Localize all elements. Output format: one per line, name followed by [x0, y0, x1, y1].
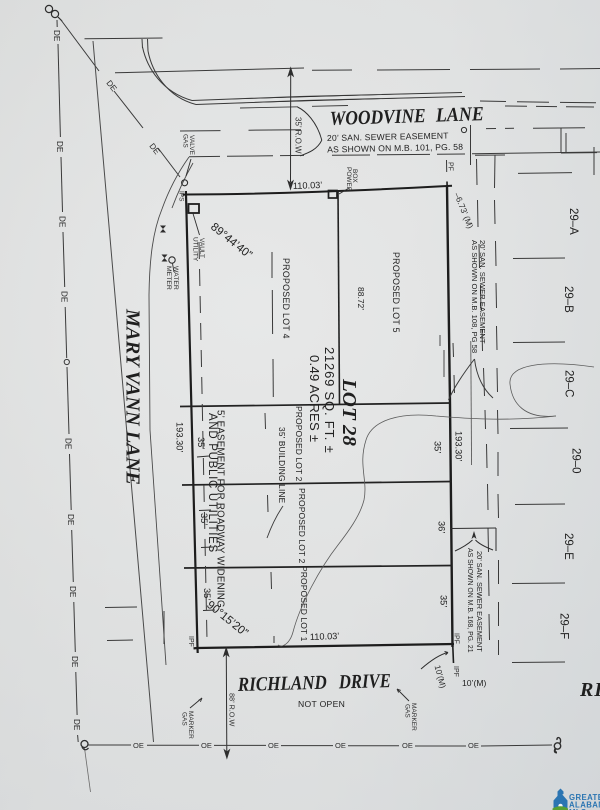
svg-text:POWER: POWER — [345, 167, 352, 192]
svg-text:IPF: IPF — [452, 666, 459, 677]
svg-text:88.72’: 88.72’ — [356, 287, 366, 310]
svg-text:35’: 35’ — [433, 441, 443, 453]
svg-text:PROPOSED LOT 2: PROPOSED LOT 2 — [294, 406, 304, 482]
svg-text:29–C: 29–C — [563, 370, 575, 398]
svg-text:OE: OE — [335, 741, 346, 750]
svg-text:GAS: GAS — [182, 134, 189, 148]
svg-text:AS SHOWN ON M.B. 108, PG 58: AS SHOWN ON M.B. 108, PG 58 — [470, 240, 479, 353]
svg-text:110.03’: 110.03’ — [293, 180, 323, 191]
svg-text:35’ R.O.W: 35’ R.O.W — [294, 117, 303, 154]
svg-text:10’(M): 10’(M) — [433, 664, 449, 690]
svg-text:89°44’40”: 89°44’40” — [208, 221, 254, 261]
svg-text:OE: OE — [468, 741, 479, 750]
svg-text:VALVE: VALVE — [188, 135, 195, 156]
svg-text:AND PUBLIC UTILITIES: AND PUBLIC UTILITIES — [206, 413, 218, 553]
svg-text:DE: DE — [66, 514, 75, 526]
svg-text:IPF: IPF — [187, 636, 194, 647]
svg-text:DE: DE — [72, 719, 81, 731]
svg-text:DE: DE — [104, 79, 118, 94]
svg-text:DE: DE — [60, 291, 69, 303]
svg-text:DE: DE — [55, 141, 64, 153]
svg-text:PROPOSED LOT 5: PROPOSED LOT 5 — [391, 252, 401, 333]
svg-text:35’: 35’ — [199, 513, 209, 525]
svg-text:193.30’: 193.30’ — [175, 422, 185, 453]
svg-text:NOT OPEN: NOT OPEN — [298, 699, 345, 709]
svg-text:OE: OE — [268, 741, 279, 750]
svg-text:AS SHOWN ON M.B. 101, PG. 58: AS SHOWN ON M.B. 101, PG. 58 — [327, 142, 463, 155]
svg-text:UTILITY: UTILITY — [192, 237, 199, 262]
svg-text:88’ R.O.W: 88’ R.O.W — [228, 693, 237, 726]
svg-text:90°15’20”: 90°15’20” — [204, 599, 250, 639]
svg-text:DRIVE: DRIVE — [338, 670, 391, 693]
svg-text:LANE: LANE — [435, 103, 485, 127]
svg-text:20’ SAN. SEWER EASEMENT: 20’ SAN. SEWER EASEMENT — [327, 130, 449, 143]
svg-text:PROPOSED LOT 4: PROPOSED LOT 4 — [281, 258, 291, 339]
svg-text:DE: DE — [147, 142, 161, 157]
svg-text:WATER: WATER — [172, 266, 179, 290]
svg-text:OE: OE — [201, 741, 212, 750]
svg-text:DE: DE — [70, 656, 79, 668]
svg-text:29–E: 29–E — [562, 533, 574, 560]
svg-text:35’: 35’ — [202, 588, 212, 600]
svg-text:DE: DE — [68, 586, 77, 598]
svg-text:DE: DE — [52, 30, 61, 42]
svg-text:20’ SAN. SEWER EASEMENT: 20’ SAN. SEWER EASEMENT — [475, 551, 484, 652]
svg-text:DE: DE — [58, 216, 67, 228]
svg-text:0.49 ACRES ±: 0.49 ACRES ± — [307, 355, 322, 442]
svg-text:GAS: GAS — [181, 712, 188, 726]
svg-text:MARY VANN LANE: MARY VANN LANE — [122, 308, 144, 485]
svg-text:IPF: IPF — [453, 633, 460, 644]
svg-text:10’(M): 10’(M) — [462, 678, 486, 688]
svg-text:OE: OE — [402, 741, 413, 750]
svg-text:MARKER: MARKER — [410, 703, 417, 731]
svg-text:29–B: 29–B — [562, 286, 574, 313]
svg-text:29–A: 29–A — [567, 208, 579, 235]
svg-text:GAS: GAS — [404, 704, 411, 718]
svg-text:AS SHOWN ON M.B. 168, PG. 21: AS SHOWN ON M.B. 168, PG. 21 — [466, 548, 473, 653]
svg-text:RICHLAND: RICHLAND — [237, 672, 327, 696]
svg-text:21269 SQ. FT. ±: 21269 SQ. FT. ± — [322, 347, 337, 454]
svg-text:36’: 36’ — [437, 521, 447, 533]
svg-text:110.03’: 110.03’ — [310, 631, 340, 642]
svg-text:PROPOSED LOT 2: PROPOSED LOT 2 — [297, 488, 307, 564]
svg-text:PF: PF — [447, 162, 454, 171]
svg-text:PROPOSED LOT 1: PROPOSED LOT 1 — [299, 566, 309, 642]
svg-text:METER: METER — [165, 266, 172, 290]
svg-text:29–0: 29–0 — [570, 448, 582, 474]
svg-text:–6.73’ (M): –6.73’ (M) — [452, 191, 476, 230]
svg-text:RI: RI — [579, 679, 600, 701]
svg-text:LOT 28: LOT 28 — [338, 378, 360, 446]
svg-text:DE: DE — [64, 438, 73, 450]
svg-text:35’: 35’ — [439, 595, 449, 607]
svg-text:IPS: IPS — [178, 191, 185, 202]
svg-text:WOODVINE: WOODVINE — [329, 105, 426, 130]
svg-text:29–F: 29–F — [558, 613, 570, 639]
svg-text:35’: 35’ — [196, 437, 206, 449]
svg-text:35’ BUILDING LINE: 35’ BUILDING LINE — [277, 427, 287, 504]
svg-text:BOX: BOX — [351, 169, 358, 183]
svg-text:MARKER: MARKER — [187, 711, 194, 739]
svg-text:OE: OE — [133, 741, 144, 750]
svg-text:193.30’: 193.30’ — [454, 431, 464, 462]
